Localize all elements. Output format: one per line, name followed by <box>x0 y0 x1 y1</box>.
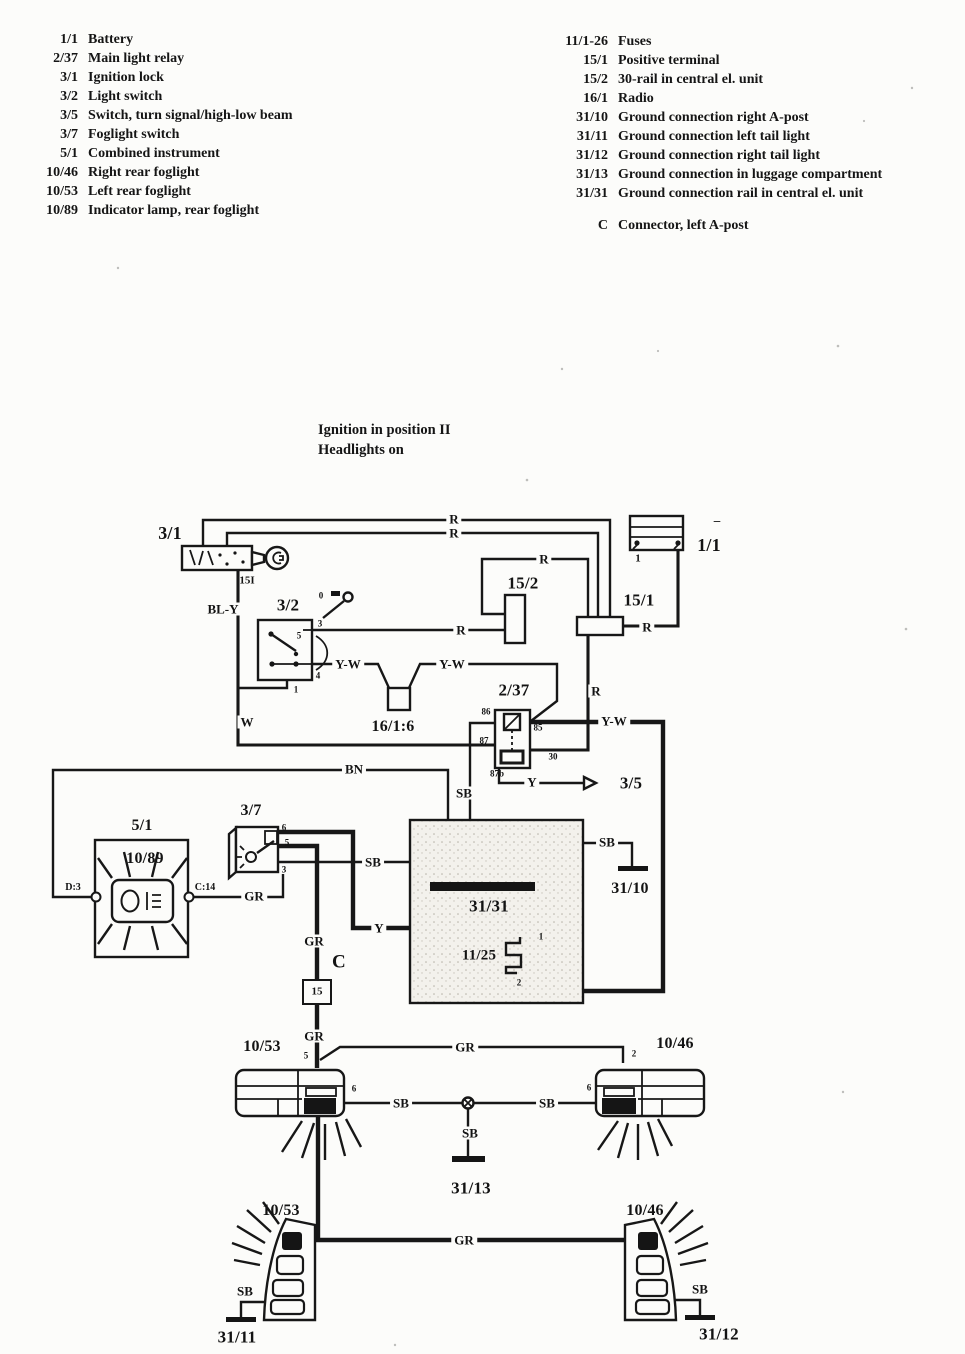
wiring-diagram-page: { "page": {"background": "#fcfcfa", "ink… <box>0 0 965 1354</box>
radio-connector-symbol <box>388 688 410 710</box>
foglight-rays <box>598 1119 672 1160</box>
terminal-c14 <box>185 893 194 902</box>
ground-rail-31-31 <box>430 882 535 891</box>
connector-c15-symbol <box>303 980 331 1004</box>
relay-symbol <box>495 710 530 768</box>
fuse-11-25-symbol <box>506 937 521 973</box>
welded-junction <box>463 1098 474 1109</box>
schematic-svg <box>0 0 965 1354</box>
rail-15-2-symbol <box>505 595 525 643</box>
left-foglight-symbol <box>236 1070 361 1160</box>
foglight-switch-symbol <box>229 827 278 878</box>
battery-symbol <box>630 516 683 550</box>
arrow-to-3-5 <box>584 777 596 789</box>
central-unit-box <box>410 820 583 1003</box>
terminal-d3 <box>92 893 101 902</box>
ignition-lock-symbol <box>182 546 288 570</box>
foglight-rays <box>282 1119 361 1160</box>
positive-terminal-symbol <box>577 617 623 635</box>
right-taillight-symbol <box>625 1202 708 1320</box>
right-foglight-symbol <box>596 1070 704 1160</box>
instrument-5-1-symbol <box>92 840 194 957</box>
switch-knob-icon <box>323 591 353 618</box>
